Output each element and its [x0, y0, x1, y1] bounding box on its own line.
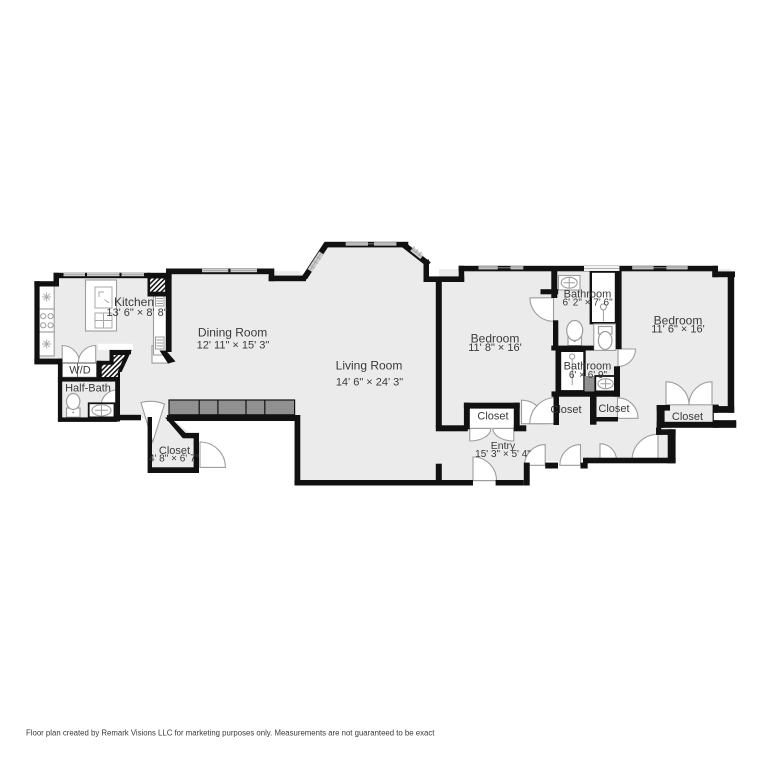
svg-text:11' 6" × 16': 11' 6" × 16'	[651, 324, 704, 336]
svg-text:Floor plan created by Remark V: Floor plan created by Remark Visions LLC…	[26, 728, 435, 737]
svg-text:4' 8" × 6' 7": 4' 8" × 6' 7"	[149, 454, 200, 465]
svg-text:6' 2" × 7' 6": 6' 2" × 7' 6"	[563, 298, 614, 309]
svg-text:6' × 6' 9": 6' × 6' 9"	[569, 370, 608, 381]
svg-text:Dining Room: Dining Room	[198, 326, 267, 340]
svg-text:Closet: Closet	[477, 411, 508, 423]
svg-text:Living Room: Living Room	[336, 359, 403, 373]
svg-text:W/D: W/D	[69, 365, 90, 377]
svg-text:12' 11" × 15' 3": 12' 11" × 15' 3"	[197, 340, 270, 352]
svg-text:15' 3" × 5' 4": 15' 3" × 5' 4"	[475, 449, 531, 460]
svg-text:Closet: Closet	[598, 403, 629, 415]
svg-text:Closet: Closet	[672, 411, 703, 423]
svg-text:Closet: Closet	[550, 404, 581, 416]
svg-text:Half-Bath: Half-Bath	[65, 383, 111, 395]
svg-text:11' 8" × 16': 11' 8" × 16'	[468, 342, 521, 354]
svg-text:14' 6" × 24' 3": 14' 6" × 24' 3"	[336, 377, 403, 389]
svg-text:13' 6" × 8' 8": 13' 6" × 8' 8"	[106, 307, 167, 319]
